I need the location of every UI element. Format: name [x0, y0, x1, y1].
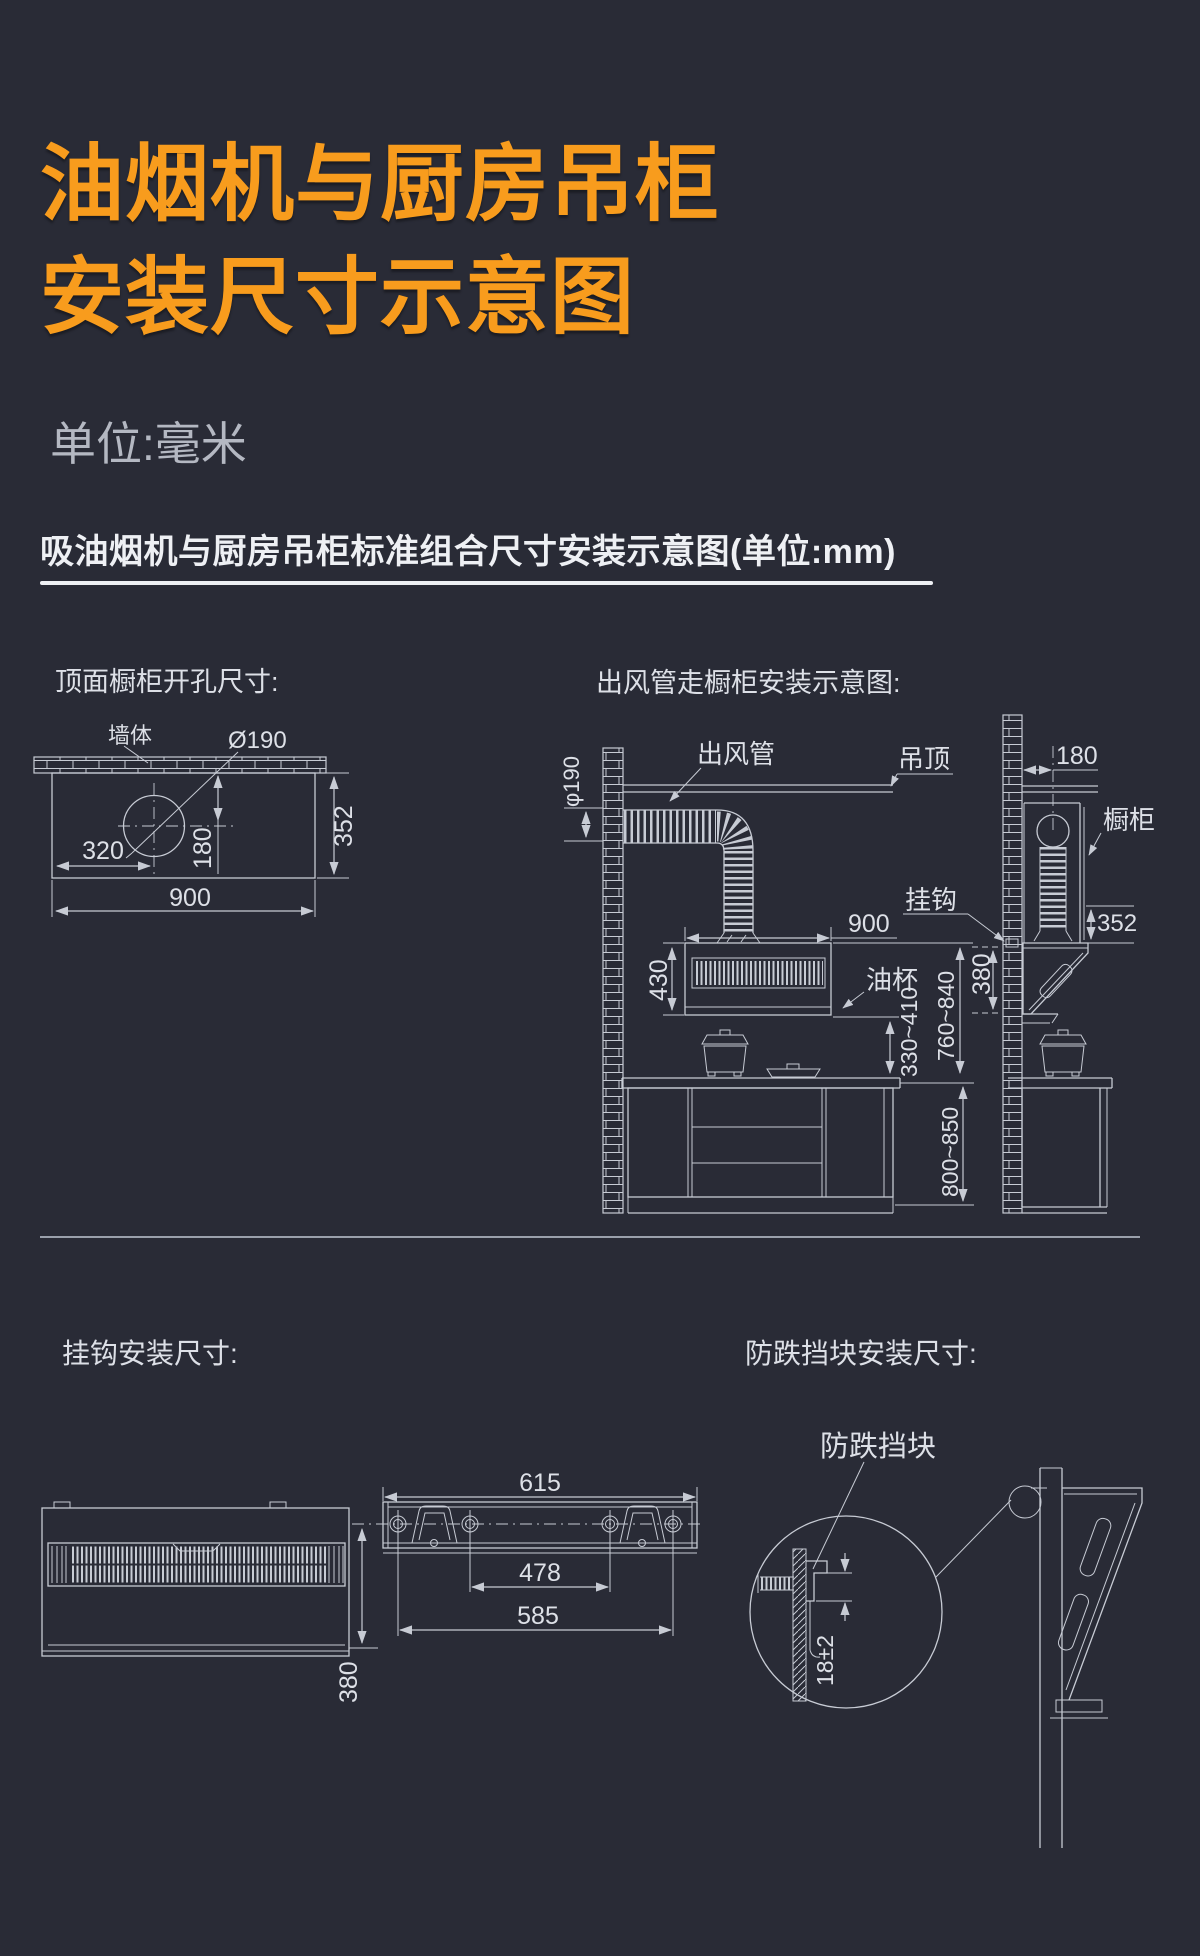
duct-dia-label: φ190	[559, 756, 584, 807]
hole-dia-label: Ø190	[228, 727, 287, 754]
wall-label: 墙体	[108, 723, 152, 748]
dim-760-840: 760~840	[933, 971, 959, 1061]
block-label: 防跌挡块	[820, 1430, 936, 1463]
dim-180: 180	[189, 827, 217, 869]
dim-side-352: 352	[1097, 910, 1137, 937]
cabinet-label: 橱柜	[1103, 805, 1155, 835]
keyhole-slot	[620, 1506, 665, 1547]
dim-side-380: 380	[968, 953, 996, 995]
detail-circle	[750, 1516, 942, 1708]
pot	[702, 1030, 748, 1076]
detail-marker-circle	[1009, 1486, 1041, 1518]
wall-column-left	[603, 748, 623, 1213]
hook-label: 挂钩	[905, 885, 957, 915]
dim-side-180: 180	[1056, 742, 1098, 770]
burner	[767, 1064, 820, 1077]
dim-hood-430: 430	[645, 959, 673, 1001]
top-view-diagram: 墙体 Ø190 320 180 900 352	[34, 723, 358, 917]
wall-section	[793, 1549, 806, 1701]
dim-900: 900	[169, 884, 211, 912]
wall-strip	[34, 757, 326, 773]
dim-330-410: 330~410	[896, 987, 922, 1077]
dim-320: 320	[82, 837, 124, 865]
dim-18: 18±2	[812, 1635, 838, 1686]
keyhole-slot	[412, 1506, 457, 1547]
screw	[758, 1574, 794, 1593]
dim-352: 352	[330, 805, 358, 847]
diagram-canvas: 墙体 Ø190 320 180 900 352 吊顶 出风管	[0, 0, 1200, 1956]
dim-478: 478	[519, 1559, 561, 1587]
dim-hood-900: 900	[848, 910, 890, 938]
base-cabinet	[628, 1088, 893, 1197]
pot	[1040, 1030, 1086, 1076]
duct-view-diagram: 吊顶 出风管 φ190 900	[559, 715, 1155, 1213]
block-view-diagram: 防跌挡块 18±2	[750, 1430, 1142, 1848]
anti-fall-block	[806, 1561, 827, 1601]
ceiling-label: 吊顶	[898, 744, 950, 774]
duct-label: 出风管	[697, 739, 775, 769]
hood-side-bracket	[1022, 943, 1088, 1023]
hook-view-diagram: 380 615 478	[42, 1469, 703, 1703]
dim-hood-380: 380	[335, 1661, 363, 1703]
dim-585: 585	[517, 1602, 559, 1630]
side-bracket	[1050, 1488, 1142, 1718]
dim-615: 615	[519, 1469, 561, 1497]
wall-column-right	[1003, 715, 1022, 1213]
mounting-bar	[383, 1502, 697, 1548]
dim-800-850: 800~850	[937, 1107, 963, 1197]
